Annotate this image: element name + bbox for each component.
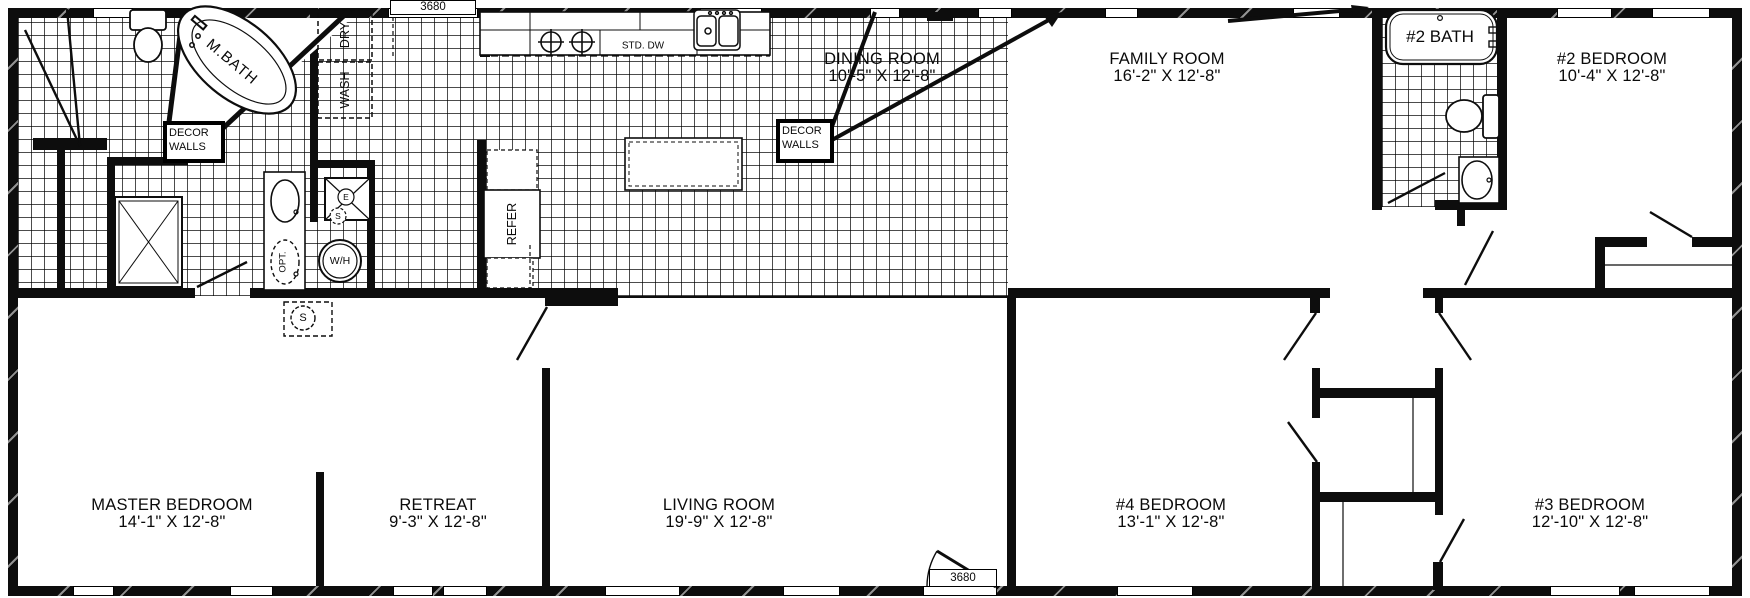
decor-walls-callout: DECOR WALLS <box>163 121 225 163</box>
room-name: FAMILY ROOM <box>1109 51 1224 68</box>
label-wash: WASH <box>338 71 352 108</box>
cabinet <box>487 258 533 288</box>
room-dims: 10'-4" X 12'-8" <box>1557 68 1667 85</box>
vanity-sink-2 <box>1459 157 1499 203</box>
kitchen-island <box>625 138 742 190</box>
optional-s-box <box>284 302 332 336</box>
label-opt: OPT. <box>278 251 289 272</box>
room-name: #3 BEDROOM <box>1532 497 1649 514</box>
label-dry: DRY <box>338 22 352 48</box>
room-dims: 16'-2" X 12'-8" <box>1109 68 1224 85</box>
room-dims: 9'-3" X 12'-8" <box>389 514 487 531</box>
room-name: #4 BEDROOM <box>1116 497 1226 514</box>
floorplan-linework <box>0 0 1750 598</box>
label-std-dw: STD. DW <box>622 41 664 52</box>
door-size-tag-front: 3680 <box>929 569 997 587</box>
room-label-dining: DINING ROOM 10'-5" X 12'-8" <box>824 51 940 86</box>
label-bath2: #2 BATH <box>1406 27 1474 47</box>
room-name: LIVING ROOM <box>663 497 775 514</box>
label-refer: REFER <box>505 203 519 245</box>
room-label-bed4: #4 BEDROOM 13'-1" X 12'-8" <box>1116 497 1226 532</box>
decor-walls-callout: DECOR WALLS <box>776 119 834 163</box>
label-s-marker-small: S <box>335 211 341 221</box>
room-name: MASTER BEDROOM <box>91 497 252 514</box>
room-dims: 12'-10" X 12'-8" <box>1532 514 1649 531</box>
room-label-retreat: RETREAT 9'-3" X 12'-8" <box>389 497 487 532</box>
room-name: RETREAT <box>389 497 487 514</box>
room-label-living: LIVING ROOM 19'-9" X 12'-8" <box>663 497 775 532</box>
room-dims: 10'-5" X 12'-8" <box>824 68 940 85</box>
label-e-marker: E <box>343 192 349 202</box>
room-dims: 19'-9" X 12'-8" <box>663 514 775 531</box>
room-dims: 13'-1" X 12'-8" <box>1116 514 1226 531</box>
room-label-bed3: #3 BEDROOM 12'-10" X 12'-8" <box>1532 497 1649 532</box>
toilet-icon <box>130 10 166 62</box>
room-label-family: FAMILY ROOM 16'-2" X 12'-8" <box>1109 51 1224 86</box>
room-name: DINING ROOM <box>824 51 940 68</box>
cabinet <box>487 150 537 190</box>
room-label-bed2: #2 BEDROOM 10'-4" X 12'-8" <box>1557 51 1667 86</box>
label-s-marker: S <box>299 312 306 324</box>
door-size-tag-rear: 3680 <box>390 0 476 15</box>
kitchen-sink <box>694 10 740 50</box>
room-label-master: MASTER BEDROOM 14'-1" X 12'-8" <box>91 497 252 532</box>
shower <box>115 197 182 287</box>
room-name: #2 BEDROOM <box>1557 51 1667 68</box>
floorplan: DECOR WALLS DECOR WALLS 3680 3680 MASTER… <box>0 0 1750 598</box>
label-water-heater: W/H <box>330 255 350 267</box>
toilet-icon <box>1446 95 1499 138</box>
room-dims: 14'-1" X 12'-8" <box>91 514 252 531</box>
